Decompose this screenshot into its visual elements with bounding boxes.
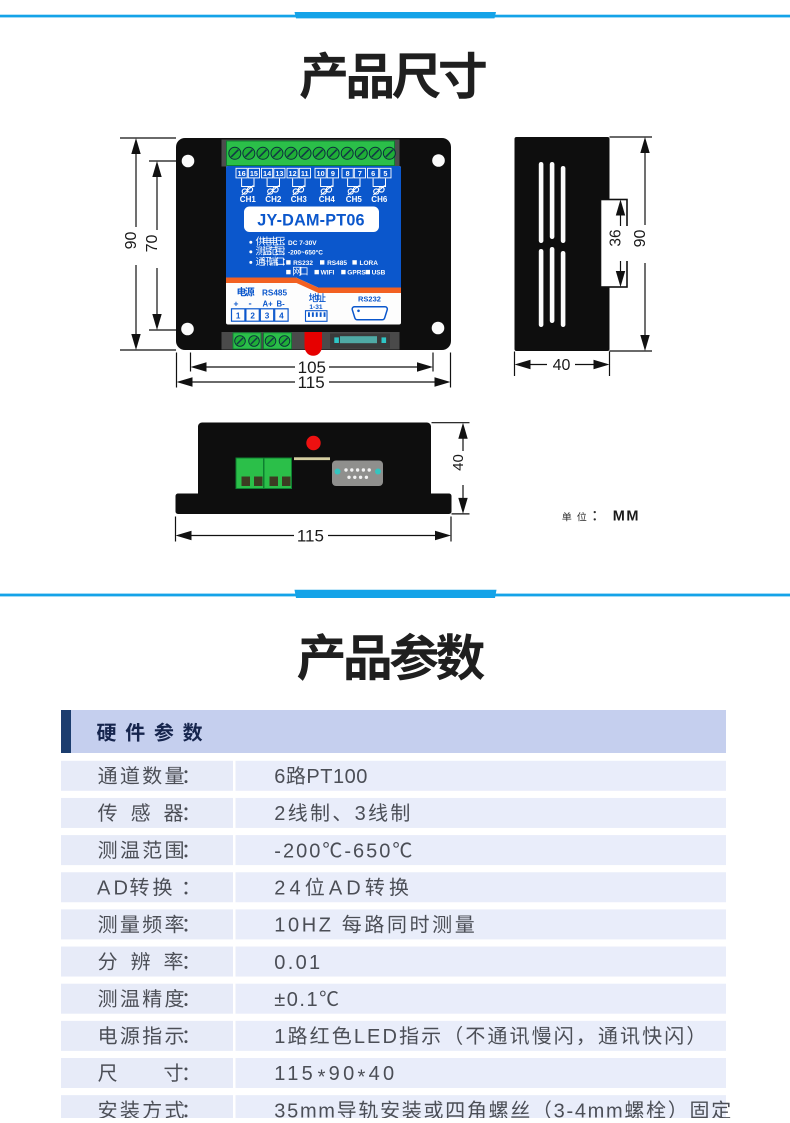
svg-text:11: 11 — [301, 169, 309, 178]
svg-text:14: 14 — [263, 169, 272, 178]
svg-text:90: 90 — [123, 232, 140, 250]
svg-text:2: 2 — [274, 803, 287, 825]
svg-text:7: 7 — [358, 169, 362, 178]
svg-text:MM: MM — [613, 509, 640, 525]
svg-text:-200~650°C: -200~650°C — [288, 249, 323, 257]
svg-text:24: 24 — [274, 877, 304, 899]
svg-text:RS485: RS485 — [262, 289, 287, 298]
svg-text:1: 1 — [236, 312, 241, 321]
svg-text:D: D — [114, 877, 128, 899]
svg-text:CH5: CH5 — [346, 195, 363, 204]
svg-text:-650: -650 — [344, 840, 392, 862]
svg-text:RS232: RS232 — [293, 260, 313, 267]
svg-text:115: 115 — [297, 527, 324, 546]
svg-text:10HZ: 10HZ — [274, 915, 333, 937]
svg-text:35mm: 35mm — [274, 1100, 336, 1118]
svg-text:A+: A+ — [263, 300, 274, 309]
svg-text:LED: LED — [354, 1026, 399, 1048]
svg-text:0.01: 0.01 — [274, 952, 322, 974]
svg-text:90: 90 — [329, 1063, 358, 1085]
svg-text:GPRS: GPRS — [347, 270, 366, 277]
svg-text:CH3: CH3 — [291, 195, 308, 204]
svg-text:40: 40 — [553, 357, 571, 374]
svg-text:AD: AD — [329, 877, 365, 899]
svg-text:8: 8 — [346, 169, 350, 178]
svg-text:CH4: CH4 — [319, 195, 336, 204]
svg-text:B-: B- — [277, 300, 286, 309]
svg-text:10: 10 — [317, 169, 325, 178]
svg-text:6: 6 — [371, 169, 375, 178]
svg-text:RS485: RS485 — [327, 260, 347, 267]
svg-text:15: 15 — [250, 169, 258, 178]
svg-text:3-4mm: 3-4mm — [554, 1100, 625, 1118]
svg-text:LORA: LORA — [360, 260, 379, 267]
svg-text:1-31: 1-31 — [309, 304, 323, 311]
svg-text:3: 3 — [265, 312, 270, 321]
svg-text:40: 40 — [369, 1063, 398, 1085]
svg-text:PT100: PT100 — [306, 766, 367, 788]
svg-text:CH1: CH1 — [240, 195, 257, 204]
svg-text:40: 40 — [450, 454, 467, 471]
svg-text:2: 2 — [250, 312, 255, 321]
svg-text:90: 90 — [632, 230, 649, 248]
svg-text:9: 9 — [331, 169, 335, 178]
svg-text:RS232: RS232 — [358, 294, 381, 303]
svg-text:115: 115 — [298, 373, 325, 392]
svg-text:-: - — [249, 299, 252, 310]
svg-text:3: 3 — [355, 803, 368, 825]
svg-text:1: 1 — [274, 1026, 287, 1048]
svg-text:*: * — [318, 1066, 329, 1088]
svg-text:16: 16 — [238, 169, 246, 178]
svg-text:12: 12 — [289, 169, 297, 178]
svg-text:*: * — [358, 1066, 369, 1088]
svg-text:±0.1: ±0.1 — [274, 989, 319, 1011]
svg-text:-200: -200 — [274, 840, 322, 862]
svg-text:4: 4 — [279, 312, 284, 321]
svg-text:70: 70 — [144, 235, 161, 253]
svg-text:36: 36 — [608, 229, 625, 246]
svg-text:+: + — [234, 299, 239, 309]
svg-text:CH6: CH6 — [371, 195, 388, 204]
svg-text:DC 7-30V: DC 7-30V — [288, 240, 317, 247]
svg-text:A: A — [97, 877, 111, 899]
svg-text:JY-DAM-PT06: JY-DAM-PT06 — [257, 211, 364, 229]
svg-text:WIFI: WIFI — [321, 270, 335, 277]
svg-text:115: 115 — [274, 1063, 316, 1085]
svg-text:5: 5 — [383, 169, 387, 178]
svg-text:USB: USB — [372, 270, 386, 277]
svg-text:CH2: CH2 — [265, 195, 282, 204]
svg-text:6: 6 — [274, 766, 286, 788]
svg-text:13: 13 — [275, 169, 283, 178]
